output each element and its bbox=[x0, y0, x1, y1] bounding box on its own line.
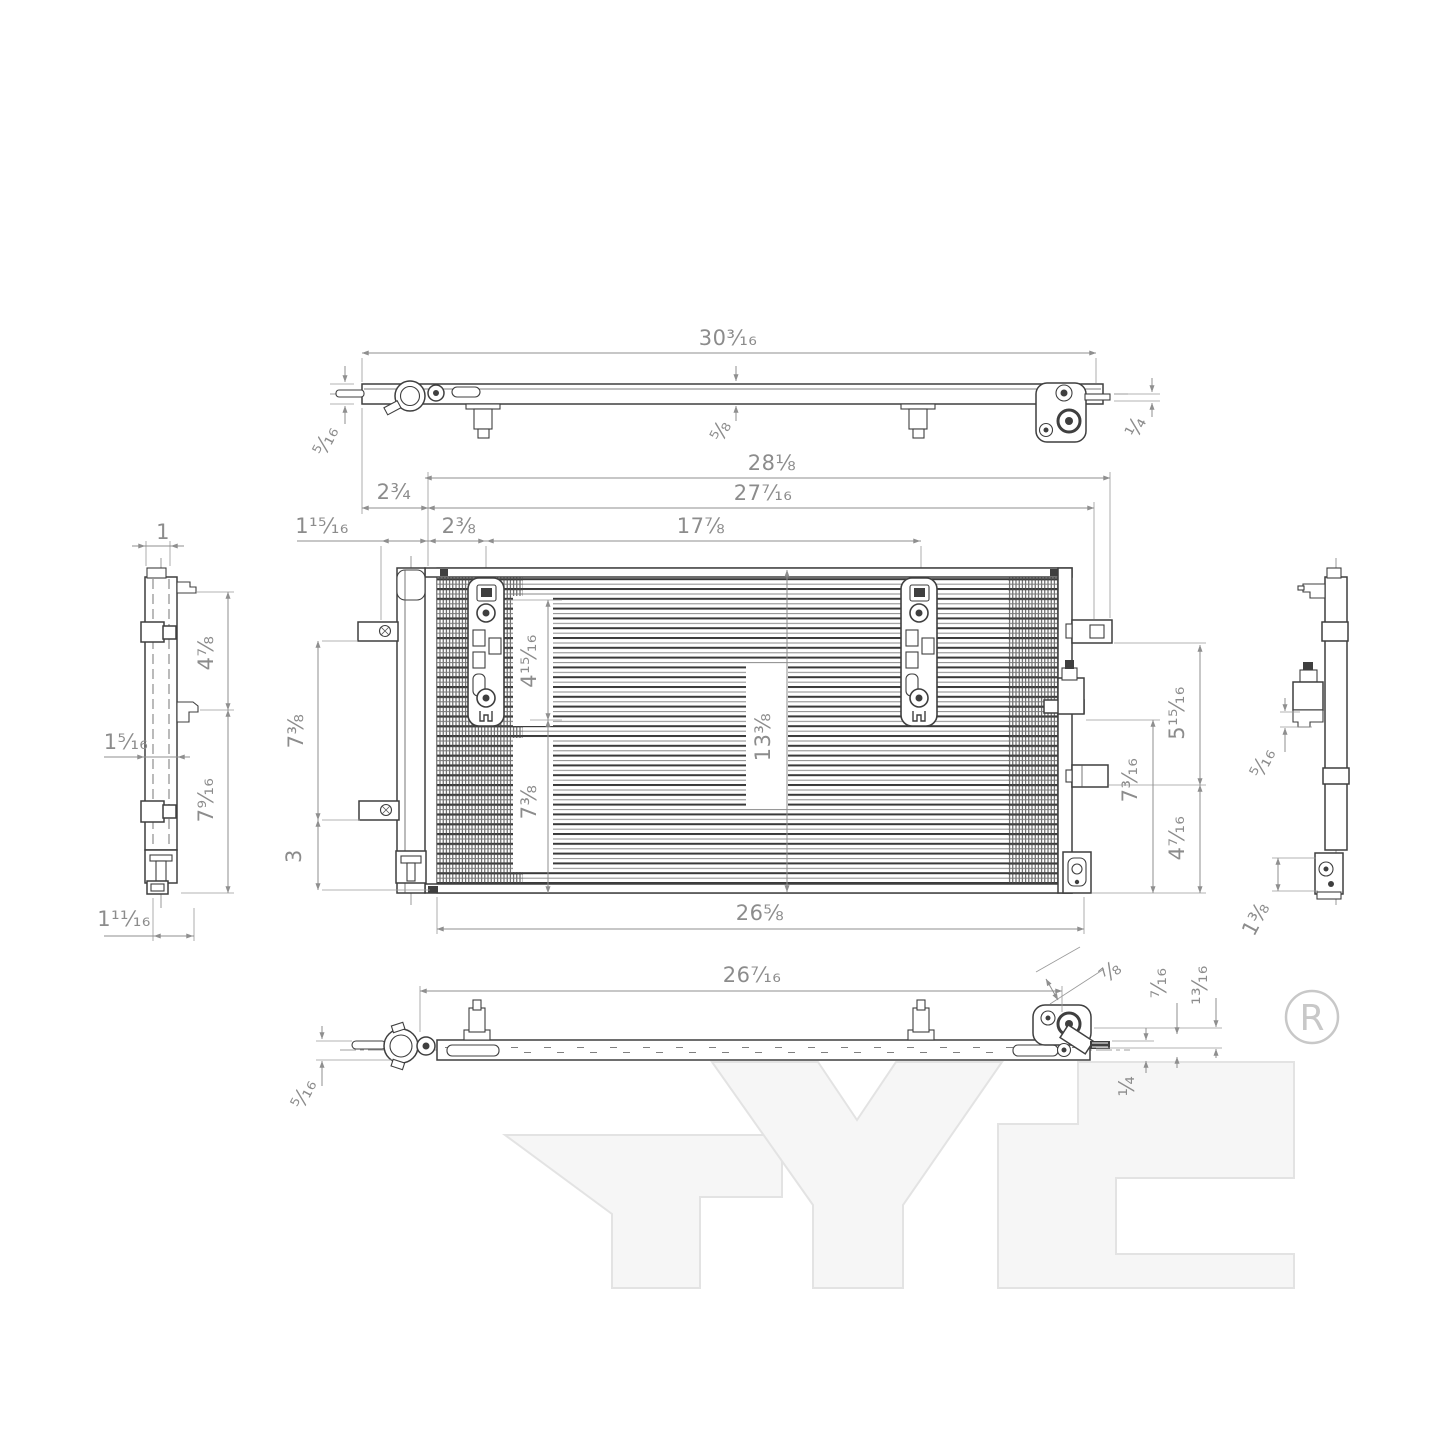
technical-drawing: R bbox=[0, 0, 1445, 1445]
left-side-view: 1 4⅞ 7⁹⁄₁₆ 1⁵⁄₁₆ 1¹¹⁄₁₆ bbox=[97, 520, 234, 941]
lv-top-tab bbox=[177, 582, 196, 593]
dim-top-left-height: ⁵⁄₁₆ bbox=[308, 421, 344, 459]
dim-inner-width: 27⁷⁄₁₆ bbox=[734, 481, 792, 505]
dim-left-span: 7⅜ bbox=[284, 714, 308, 749]
bv-post-2 bbox=[908, 1000, 934, 1040]
bv-post-1 bbox=[464, 1000, 490, 1040]
right-port bbox=[1066, 765, 1108, 787]
bv-slot-right bbox=[1013, 1045, 1058, 1056]
dim-lv-top-width: 1 bbox=[156, 520, 170, 544]
dim-top-right-tab: ¼ bbox=[1120, 412, 1151, 442]
condenser-technical-drawing-page: R bbox=[0, 0, 1445, 1445]
dim-bv-width: 26⁷⁄₁₆ bbox=[723, 963, 781, 987]
core-mount-bracket-left bbox=[468, 578, 504, 726]
dim-overall-width: 28⅛ bbox=[748, 451, 797, 475]
dim-rv-port-gap: ⁵⁄₁₆ bbox=[1245, 743, 1281, 781]
bv-slot-left bbox=[447, 1045, 499, 1056]
dim-lower-core: 7⅜ bbox=[517, 785, 541, 820]
lv-top-cap bbox=[147, 568, 166, 578]
top-post-1 bbox=[466, 404, 500, 438]
dim-rv-bottom-height: 1⅜ bbox=[1237, 898, 1274, 940]
right-bracket bbox=[1036, 383, 1086, 442]
dim-bv-bracket-step1: ⁷⁄₁₆ bbox=[1147, 968, 1171, 999]
registered-trademark-icon: R bbox=[1286, 991, 1338, 1043]
dim-core-width: 17⅞ bbox=[677, 514, 726, 538]
right-side-view: ⁵⁄₁₆ 1⅜ bbox=[1237, 558, 1349, 940]
rv-bottom-block bbox=[1315, 853, 1343, 899]
dim-bottom-width: 26⅝ bbox=[736, 901, 785, 925]
dim-top-mid-height: ⅝ bbox=[705, 416, 736, 446]
rv-top-cap bbox=[1327, 568, 1341, 578]
left-mount-tab-upper bbox=[358, 622, 398, 641]
rv-clamp-lower bbox=[1323, 768, 1349, 784]
mount-slot bbox=[452, 387, 480, 397]
rv-top-tab bbox=[1303, 584, 1325, 598]
bv-left-clamp bbox=[384, 1022, 435, 1069]
dim-right-mid: 7³⁄₁₆ bbox=[1118, 758, 1142, 803]
core-bottom-plate bbox=[425, 884, 1072, 893]
front-view: 4¹⁵⁄₁₆ 7⅜ 13⅜ 7⅜ 3 5¹⁵⁄₁₆ 7³⁄₁₆ 4⁷⁄₁₆ 26… bbox=[282, 556, 1206, 934]
dim-mid-height: 13⅜ bbox=[751, 713, 775, 762]
dim-lv-lower-height: 7⁹⁄₁₆ bbox=[194, 778, 218, 823]
left-header-tank bbox=[397, 568, 425, 893]
tyc-watermark-logo bbox=[505, 1062, 1294, 1288]
dim-left-bottom: 3 bbox=[282, 849, 306, 863]
dim-lv-bottom-width: 1¹¹⁄₁₆ bbox=[97, 907, 151, 931]
rv-valve-fitting bbox=[1293, 662, 1323, 727]
lv-mid-tab bbox=[177, 702, 198, 722]
watermark-letter-C bbox=[998, 1062, 1294, 1288]
dim-lv-tab-width: 1⁵⁄₁₆ bbox=[104, 730, 149, 754]
dim-left-inset: 2⅜ bbox=[442, 514, 477, 538]
dim-lv-upper-height: 4⅞ bbox=[194, 636, 218, 671]
watermark-letter-T bbox=[505, 1135, 782, 1288]
dim-left-offset: 2¾ bbox=[377, 480, 412, 504]
dim-bv-pin-offset: ¼ bbox=[1115, 1076, 1139, 1097]
rv-clamp-upper bbox=[1322, 622, 1348, 641]
right-pin bbox=[1085, 394, 1110, 400]
left-pin bbox=[336, 390, 364, 397]
bv-left-pin bbox=[352, 1041, 386, 1049]
right-bottom-bracket bbox=[1063, 852, 1091, 893]
top-post-2 bbox=[901, 404, 935, 438]
left-bottom-bracket bbox=[396, 851, 426, 883]
core-top-plate bbox=[425, 568, 1072, 577]
dim-left-small: 1¹⁵⁄₁₆ bbox=[295, 514, 349, 538]
dim-right-upper: 5¹⁵⁄₁₆ bbox=[1165, 686, 1189, 740]
core-fin-detail-right bbox=[1008, 577, 1058, 884]
registered-r: R bbox=[1299, 998, 1324, 1039]
dim-top-width: 30³⁄₁₆ bbox=[699, 326, 757, 350]
dim-upper-core: 4¹⁵⁄₁₆ bbox=[517, 634, 541, 688]
lv-bottom-assembly bbox=[145, 850, 177, 894]
top-view: 30³⁄₁₆ ⁵⁄₁₆ ⅝ ¼ bbox=[308, 326, 1160, 460]
right-header-tank bbox=[1058, 568, 1072, 893]
left-mount-tab-lower bbox=[359, 801, 399, 820]
dim-bv-left-height: ⁵⁄₁₆ bbox=[286, 1074, 322, 1112]
right-top-bracket bbox=[1066, 620, 1112, 643]
core-mount-bracket-right bbox=[901, 578, 937, 726]
dim-bv-bracket-step2: ¹³⁄₁₆ bbox=[1188, 965, 1212, 1005]
dim-bv-bracket-diag: ⅞ bbox=[1095, 956, 1126, 988]
dim-right-lower: 4⁷⁄₁₆ bbox=[1165, 816, 1189, 861]
